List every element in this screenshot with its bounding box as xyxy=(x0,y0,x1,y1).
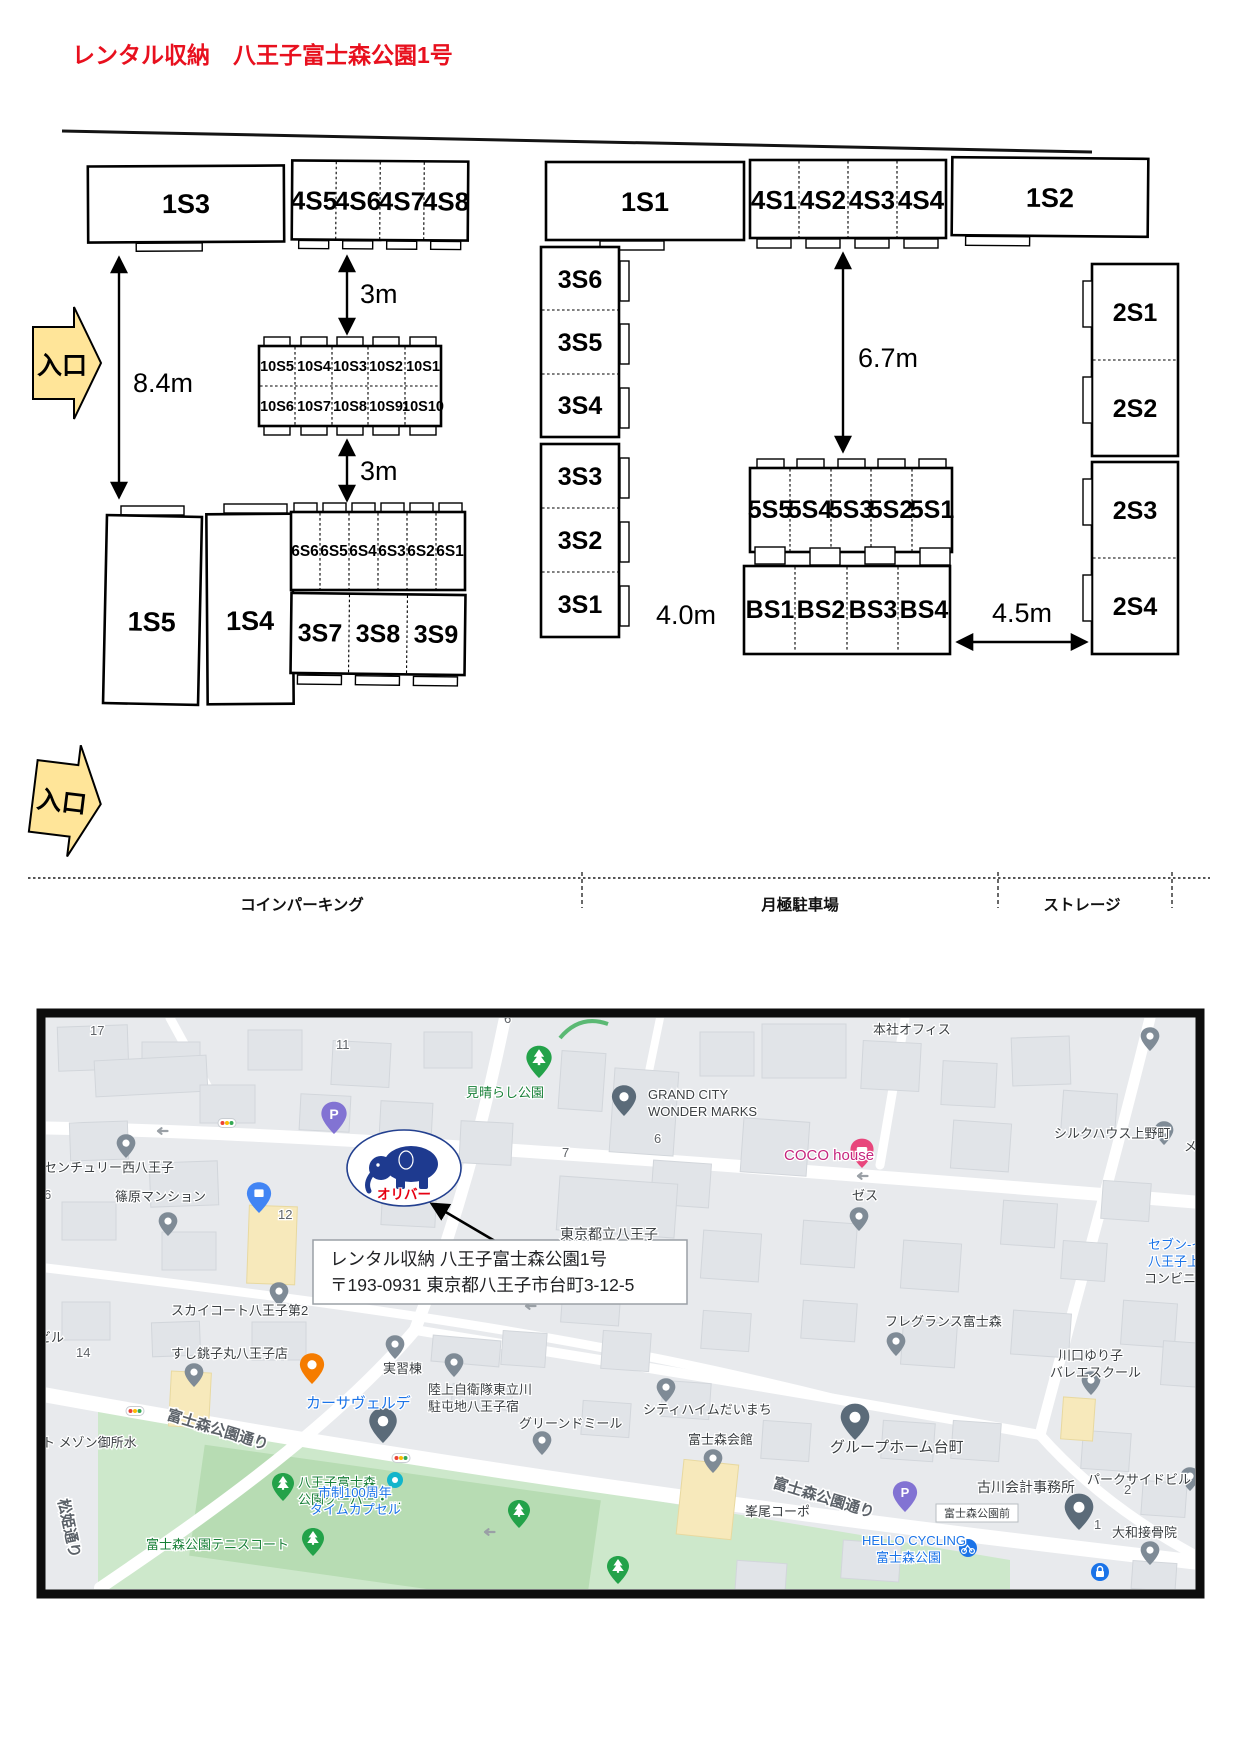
site-plan: 1S3 4S5 4S6 4S7 4S8 3m 10S5 10S4 10S3 10… xyxy=(26,131,1210,914)
traffic-light-icon xyxy=(392,1454,410,1463)
unit-4s7-label: 4S7 xyxy=(379,186,425,216)
label-mineo-corpo: 峯尾コーポ xyxy=(745,1504,810,1519)
label-fujimori-mae: 富士森公園前 xyxy=(944,1506,1010,1520)
zone-strip: コインパーキング 月極駐車場 ストレージ xyxy=(28,872,1210,914)
unit-row-6s: 6S6 6S5 6S4 6S3 6S2 6S1 xyxy=(291,503,465,590)
unit-5s3-label: 5S3 xyxy=(829,496,873,524)
label-block-12: 12 xyxy=(278,1207,292,1222)
label-yamato-clinic: 大和接骨院 xyxy=(1112,1525,1177,1540)
label-jsdf-2: 駐屯地八王子宿 xyxy=(428,1399,519,1414)
unit-3s1-label: 3S1 xyxy=(558,591,603,619)
zone-storage-label: ストレージ xyxy=(1043,897,1121,914)
entrance-arrow-1: 入口 xyxy=(33,307,101,419)
unit-2s4-label: 2S4 xyxy=(1113,593,1158,621)
dim-6-7m-label: 6.7m xyxy=(858,343,918,373)
label-grand-city-1: GRAND CITY xyxy=(648,1087,729,1102)
door-tab xyxy=(136,243,202,251)
callout-address: 〒193-0931 東京都八王子市台町3-12-5 xyxy=(330,1275,634,1295)
label-coco-house: COCO house xyxy=(784,1147,874,1164)
label-block-6: 6 xyxy=(654,1131,661,1146)
oliver-logo: オリバー xyxy=(347,1130,461,1206)
lock-icon xyxy=(1091,1563,1109,1581)
label-jsdf-1: 陸上自衛隊東立川 xyxy=(428,1382,532,1397)
unit-1s5-label: 1S5 xyxy=(127,606,176,637)
unit-col-2s3-2s4: 2S3 2S4 xyxy=(1083,462,1178,654)
label-tennis-court: 富士森公園テニスコート xyxy=(146,1537,289,1552)
unit-4s2-label: 4S2 xyxy=(800,185,846,215)
unit-5s2-label: 5S2 xyxy=(869,496,913,524)
label-honsha-office: 本社オフィス xyxy=(873,1022,951,1037)
unit-3s4-label: 3S4 xyxy=(558,392,603,420)
label-parkside-bldg: パークサイドビル xyxy=(1087,1472,1191,1487)
unit-6s2-label: 6S2 xyxy=(407,543,435,560)
unit-3s7-label: 3S7 xyxy=(298,619,343,648)
entrance-1-label: 入口 xyxy=(37,352,87,380)
boundary-line xyxy=(62,131,1092,152)
unit-2s2-label: 2S2 xyxy=(1113,395,1157,423)
unit-6s3-label: 6S3 xyxy=(378,543,406,560)
address-callout: レンタル収納 八王子富士森公園1号 〒193-0931 東京都八王子市台町3-1… xyxy=(313,1240,687,1304)
parking-pin-letter: P xyxy=(329,1106,338,1122)
unit-4s3-label: 4S3 xyxy=(849,185,895,215)
label-tokyo-metropolitan: 東京都立八王子 xyxy=(560,1226,658,1242)
unit-block-10s: 10S5 10S4 10S3 10S2 10S1 10S6 10S7 10S8 … xyxy=(259,337,444,435)
label-block-11: 11 xyxy=(336,1037,350,1052)
label-seven-eleven-3: コンビニエンスス xyxy=(1144,1271,1240,1286)
unit-10s10-label: 10S10 xyxy=(402,399,444,415)
label-ballet-school-2: バレエスクール xyxy=(1050,1365,1141,1380)
unit-1s3-label: 1S3 xyxy=(162,189,210,219)
unit-row-bs: BS1 BS2 BS3 BS4 xyxy=(744,547,950,654)
unit-col-3s6-3s4: 3S6 3S5 3S4 xyxy=(541,247,629,437)
parking-pin-letter: P xyxy=(901,1485,910,1500)
unit-5s4-label: 5S4 xyxy=(788,496,833,524)
unit-4s1-label: 4S1 xyxy=(751,185,797,215)
unit-10s7-label: 10S7 xyxy=(297,399,331,415)
label-grand-city-2: WONDER MARKS xyxy=(648,1104,757,1119)
unit-10s8-label: 10S8 xyxy=(333,399,367,415)
label-sky-court: スカイコート八王子第2 xyxy=(171,1303,308,1318)
label-green-domir: グリーンドミール xyxy=(519,1416,622,1431)
unit-3s8-label: 3S8 xyxy=(356,620,401,649)
label-zesu: ゼス xyxy=(852,1188,878,1203)
unit-10s9-label: 10S9 xyxy=(369,399,403,415)
unit-6s5-label: 6S5 xyxy=(320,543,348,560)
unit-col-3s3-3s1: 3S3 3S2 3S1 xyxy=(541,444,629,637)
label-block-1: 1 xyxy=(1094,1517,1101,1532)
label-city-heim: シティハイムだいまち xyxy=(643,1402,772,1417)
label-ballet-school-1: 川口ゆり子 xyxy=(1058,1348,1123,1363)
unit-1s4-label: 1S4 xyxy=(226,606,274,636)
unit-10s3-label: 10S3 xyxy=(333,359,367,375)
entrance-arrow-2: 入口 xyxy=(26,740,107,859)
location-map: P P xyxy=(38,1011,1240,1611)
dim-8-4m-label: 8.4m xyxy=(133,368,193,398)
unit-4s6-label: 4S6 xyxy=(335,186,381,216)
label-block-2: 2 xyxy=(1124,1482,1131,1497)
flyer-canvas: レンタル収納 八王子富士森公園1号 1S3 4S5 4S6 4S7 4S8 3m… xyxy=(0,0,1240,1754)
label-block-7: 7 xyxy=(562,1145,569,1160)
unit-5s1-label: 5S1 xyxy=(910,496,955,524)
label-time-capsule-1: 市制100周年 xyxy=(318,1485,392,1500)
label-shinohara: 篠原マンション xyxy=(115,1189,206,1204)
bus-stop-label: 富士森公園前 xyxy=(936,1504,1018,1522)
label-hello-cycling-2: 富士森公園 xyxy=(876,1550,941,1565)
zone-coin-parking-label: コインパーキング xyxy=(240,895,364,914)
label-jisshuto: 実習棟 xyxy=(383,1361,422,1376)
unit-3s3-label: 3S3 xyxy=(558,463,602,491)
unit-1s1-label: 1S1 xyxy=(621,187,669,217)
unit-bs1-label: BS1 xyxy=(746,596,795,624)
label-furukawa-accounting: 古川会計事務所 xyxy=(977,1479,1075,1495)
flyer-page: レンタル収納 八王子富士森公園1号 1S3 4S5 4S6 4S7 4S8 3m… xyxy=(0,0,1240,1754)
unit-10s2-label: 10S2 xyxy=(369,359,403,375)
label-hello-cycling-1: HELLO CYCLING xyxy=(862,1533,966,1548)
unit-4s4-label: 4S4 xyxy=(898,185,945,215)
label-time-capsule-2: タイムカプセル xyxy=(310,1502,401,1517)
callout-name: レンタル収納 八王子富士森公園1号 xyxy=(330,1249,607,1269)
label-block-17: 17 xyxy=(90,1023,104,1038)
unit-row-5s: 5S5 5S4 5S3 5S2 5S1 xyxy=(748,459,955,552)
unit-3s6-label: 3S6 xyxy=(558,266,602,294)
label-group-home: グループホーム台町 xyxy=(830,1439,964,1456)
dim-4-0m-label: 4.0m xyxy=(656,600,716,630)
dim-4-5m-label: 4.5m xyxy=(992,598,1052,628)
unit-bs4-label: BS4 xyxy=(900,596,949,624)
unit-bs2-label: BS2 xyxy=(797,596,846,624)
unit-col-2s1-2s2: 2S1 2S2 xyxy=(1083,264,1178,456)
unit-2s1-label: 2S1 xyxy=(1113,299,1158,327)
unit-10s1-label: 10S1 xyxy=(406,359,440,375)
unit-10s4-label: 10S4 xyxy=(297,359,331,375)
label-century: センチュリー西八王子 xyxy=(44,1160,174,1175)
label-silk-house: シルクハウス上野町 xyxy=(1054,1126,1170,1141)
unit-6s6-label: 6S6 xyxy=(291,543,319,560)
unit-3s9-label: 3S9 xyxy=(414,620,459,649)
label-seven-eleven-1: セブン-イレ xyxy=(1148,1237,1217,1252)
label-miharashi-park: 見晴らし公園 xyxy=(466,1085,544,1100)
oliver-logo-text: オリバー xyxy=(377,1187,431,1202)
label-block-14: 14 xyxy=(76,1345,90,1360)
label-mezon-goshomizu: ト メゾン御所水 xyxy=(42,1435,137,1450)
unit-1s2-label: 1S2 xyxy=(1026,183,1074,213)
unit-4s5-label: 4S5 xyxy=(291,185,337,215)
label-fragrance: フレグランス富士森 xyxy=(885,1314,1002,1329)
label-fujimori-kaikan: 富士森会館 xyxy=(688,1432,753,1447)
traffic-light-icon xyxy=(126,1407,144,1416)
unit-6s4-label: 6S4 xyxy=(349,543,377,560)
dim-3m-upper-label: 3m xyxy=(360,279,398,309)
dim-3m-lower-label: 3m xyxy=(360,456,398,486)
unit-4s8-label: 4S8 xyxy=(423,186,469,216)
unit-bs3-label: BS3 xyxy=(849,596,898,624)
page-title: レンタル収納 八王子富士森公園1号 xyxy=(72,42,453,68)
unit-6s1-label: 6S1 xyxy=(436,543,464,560)
unit-row-4s1-4s4: 4S1 4S2 4S3 4S4 xyxy=(750,160,946,248)
unit-3s5-label: 3S5 xyxy=(558,329,603,357)
traffic-light-icon xyxy=(218,1119,236,1128)
unit-3s2-label: 3S2 xyxy=(558,527,602,555)
label-sushi: すし銚子丸八王子店 xyxy=(171,1346,288,1361)
zone-monthly-parking-label: 月極駐車場 xyxy=(760,895,839,914)
unit-row-3s7-3s9: 3S7 3S8 3S9 xyxy=(290,593,465,686)
unit-10s6-label: 10S6 xyxy=(260,399,294,415)
unit-5s5-label: 5S5 xyxy=(748,496,793,524)
unit-10s5-label: 10S5 xyxy=(260,359,294,375)
unit-2s3-label: 2S3 xyxy=(1113,497,1157,525)
label-casa-verde: カーサヴェルデ xyxy=(306,1394,411,1412)
